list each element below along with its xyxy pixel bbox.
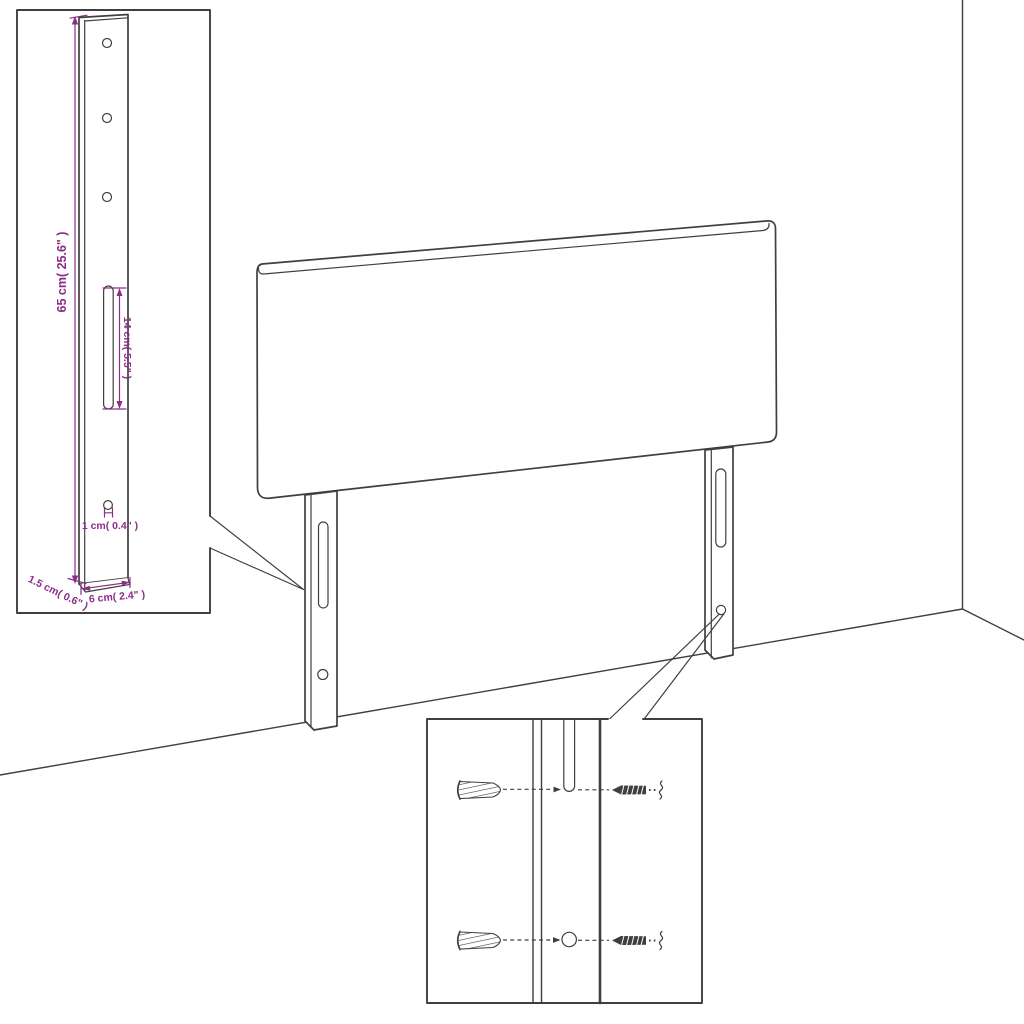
bracket-detail-inset: 65 cm( 25.6" ) 14 cm( 5.5" ) 1 cm( 0.4" … [17, 10, 210, 613]
left-mounting-leg [305, 491, 337, 730]
bracket-hole-2 [103, 114, 112, 123]
right-leg-slot [716, 469, 726, 547]
bracket-drawing [79, 15, 130, 593]
callout-lines [210, 516, 724, 721]
right-leg-hole [716, 605, 725, 614]
leg-closeup-hole [562, 932, 576, 946]
right-mounting-leg [705, 447, 733, 659]
left-leg-slot [319, 522, 329, 608]
assembly-diagram-page: 65 cm( 25.6" ) 14 cm( 5.5" ) 1 cm( 0.4" … [0, 0, 1024, 1024]
dimension-hole-label: 1 cm( 0.4" ) [82, 520, 138, 532]
wall-plug-icon-top [458, 781, 501, 800]
dimension-slot-label: 14 cm( 5.5" ) [121, 317, 133, 379]
bracket-hole-3 [103, 193, 112, 202]
bracket-hole-1 [103, 39, 112, 48]
mounting-inset-background [427, 719, 702, 1003]
headboard-panel [257, 221, 777, 498]
headboard-outline [257, 221, 777, 498]
mounting-detail-inset [427, 719, 702, 1003]
wall-plug-icon-bottom [458, 931, 501, 950]
assembly-diagram: 65 cm( 25.6" ) 14 cm( 5.5" ) 1 cm( 0.4" … [0, 0, 1024, 1024]
bracket-slot [104, 286, 114, 409]
left-leg-hole [318, 670, 328, 680]
bracket-inset-callout [210, 516, 304, 590]
floor-line-right [963, 609, 1024, 640]
dimension-height-label: 65 cm( 25.6" ) [55, 232, 69, 313]
